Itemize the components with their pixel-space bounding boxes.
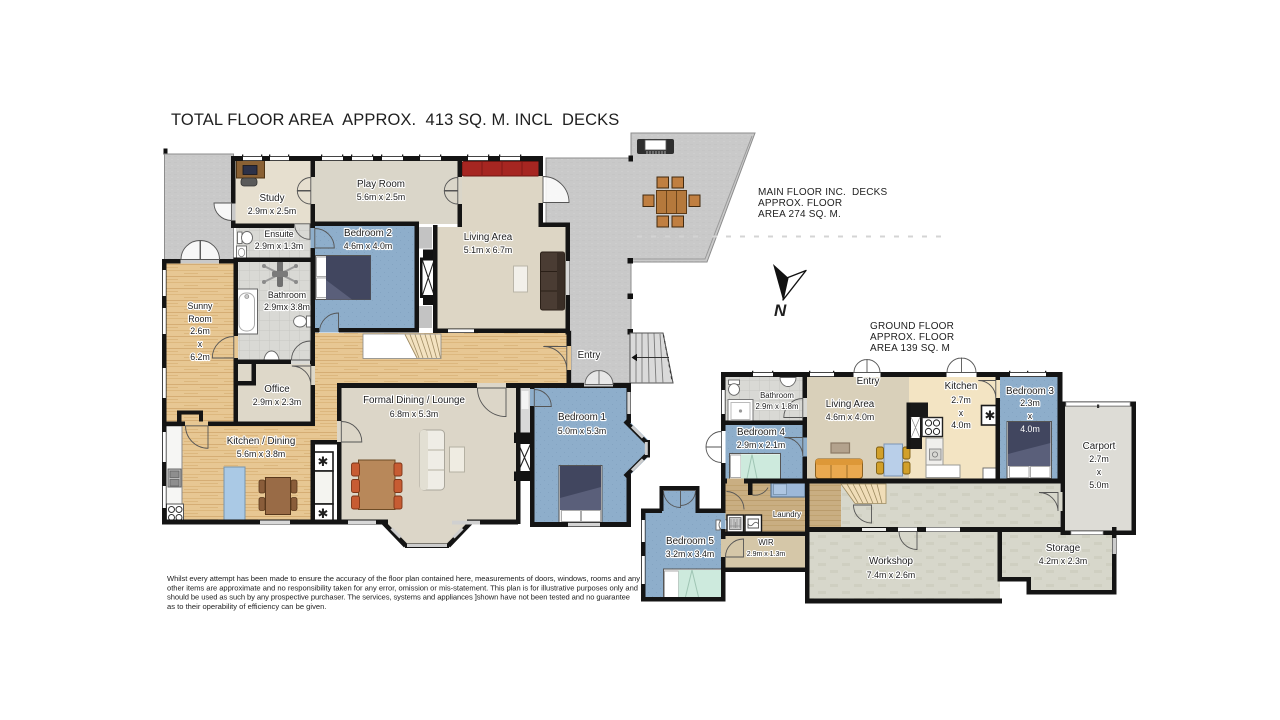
- svg-text:AREA 274 SQ. M.: AREA 274 SQ. M.: [758, 209, 841, 220]
- svg-text:2.9m x 2.1m: 2.9m x 2.1m: [737, 440, 785, 450]
- svg-text:Living Area: Living Area: [826, 399, 875, 410]
- svg-text:APPROX. FLOOR: APPROX. FLOOR: [870, 332, 954, 343]
- svg-text:Kitchen: Kitchen: [945, 381, 978, 392]
- svg-text:x: x: [959, 408, 964, 418]
- svg-text:Study: Study: [259, 193, 284, 204]
- svg-text:2.9m x 2.5m: 2.9m x 2.5m: [248, 206, 296, 216]
- svg-text:Sunny: Sunny: [188, 301, 214, 311]
- svg-text:5.1m x 6.7m: 5.1m x 6.7m: [464, 245, 512, 255]
- svg-text:6.8m x 5.3m: 6.8m x 5.3m: [390, 409, 438, 419]
- svg-text:2.9mx 3.8m: 2.9mx 3.8m: [264, 302, 310, 312]
- svg-text:4.6m x 4.0m: 4.6m x 4.0m: [344, 241, 392, 251]
- svg-text:Carport: Carport: [1083, 441, 1116, 452]
- svg-text:Kitchen / Dining: Kitchen / Dining: [227, 436, 296, 447]
- svg-text:6.2m: 6.2m: [190, 352, 210, 362]
- svg-text:4.0m: 4.0m: [951, 420, 971, 430]
- svg-text:✱: ✱: [318, 506, 329, 521]
- svg-text:should be used as such by any: should be used as such by any prospectiv…: [167, 593, 630, 602]
- svg-text:Entry: Entry: [578, 350, 601, 361]
- svg-text:Play Room: Play Room: [357, 179, 405, 190]
- svg-text:2.7m: 2.7m: [951, 395, 971, 405]
- svg-text:Storage: Storage: [1046, 543, 1081, 554]
- svg-text:✱: ✱: [985, 408, 996, 423]
- svg-text:Formal Dining / Lounge: Formal Dining / Lounge: [363, 395, 465, 406]
- svg-text:Whilst every attempt has been: Whilst every attempt has been made to en…: [167, 574, 640, 583]
- svg-text:N: N: [774, 301, 787, 320]
- svg-text:Living Area: Living Area: [464, 232, 513, 243]
- svg-text:7.4m x 2.6m: 7.4m x 2.6m: [867, 570, 915, 580]
- svg-text:4.2m x 2.3m: 4.2m x 2.3m: [1039, 556, 1087, 566]
- svg-text:2.9m x 1.3m: 2.9m x 1.3m: [747, 551, 786, 558]
- svg-text:other items are approximate an: other items are approximate and no respo…: [167, 583, 638, 592]
- svg-text:Room: Room: [188, 314, 211, 324]
- svg-text:Entry: Entry: [857, 376, 880, 387]
- svg-text:APPROX. FLOOR: APPROX. FLOOR: [758, 198, 842, 209]
- svg-text:5.0m: 5.0m: [1089, 480, 1109, 490]
- svg-text:x: x: [1028, 411, 1033, 421]
- svg-text:5.6m x 2.5m: 5.6m x 2.5m: [357, 192, 405, 202]
- svg-text:4.0m: 4.0m: [1020, 424, 1040, 434]
- svg-text:Bedroom 2: Bedroom 2: [344, 228, 392, 239]
- svg-text:Bedroom 3: Bedroom 3: [1006, 386, 1054, 397]
- svg-text:2.9m x 1.8m: 2.9m x 1.8m: [756, 402, 799, 411]
- svg-text:AREA 139 SQ. M: AREA 139 SQ. M: [870, 343, 950, 354]
- svg-text:3.2m x 3.4m: 3.2m x 3.4m: [666, 549, 714, 559]
- svg-text:GROUND FLOOR: GROUND FLOOR: [870, 321, 954, 332]
- svg-text:Workshop: Workshop: [869, 556, 913, 567]
- svg-text:2.6m: 2.6m: [190, 326, 210, 336]
- svg-text:Ensuite: Ensuite: [264, 229, 293, 239]
- svg-text:MAIN FLOOR INC. DECKS: MAIN FLOOR INC. DECKS: [758, 187, 888, 198]
- svg-text:4.6m x 4.0m: 4.6m x 4.0m: [826, 412, 874, 422]
- svg-text:Office: Office: [264, 384, 290, 395]
- svg-text:5.6m x 3.8m: 5.6m x 3.8m: [237, 449, 285, 459]
- svg-text:x: x: [1097, 467, 1102, 477]
- svg-text:Bathroom: Bathroom: [760, 391, 794, 400]
- svg-text:✱: ✱: [318, 454, 329, 469]
- svg-text:Bedroom 4: Bedroom 4: [737, 427, 785, 438]
- svg-text:2.9m x 2.3m: 2.9m x 2.3m: [253, 397, 301, 407]
- svg-text:Bedroom 5: Bedroom 5: [666, 536, 714, 547]
- svg-text:2.9m x 1.3m: 2.9m x 1.3m: [255, 241, 303, 251]
- svg-text:Bedroom 1: Bedroom 1: [558, 412, 606, 423]
- svg-text:WIR: WIR: [758, 538, 774, 547]
- svg-text:TOTAL FLOOR AREA APPROX. 413: TOTAL FLOOR AREA APPROX. 413 SQ. M. INCL…: [171, 111, 619, 129]
- svg-text:2.7m: 2.7m: [1089, 454, 1109, 464]
- svg-text:as to their operability of eff: as to their operability of efficiency ca…: [167, 602, 326, 611]
- svg-text:5.0m x 5.3m: 5.0m x 5.3m: [558, 426, 606, 436]
- svg-text:2.3m: 2.3m: [1020, 398, 1040, 408]
- svg-text:x: x: [198, 339, 203, 349]
- svg-text:Laundry: Laundry: [773, 510, 801, 519]
- svg-text:Bathroom: Bathroom: [268, 290, 306, 300]
